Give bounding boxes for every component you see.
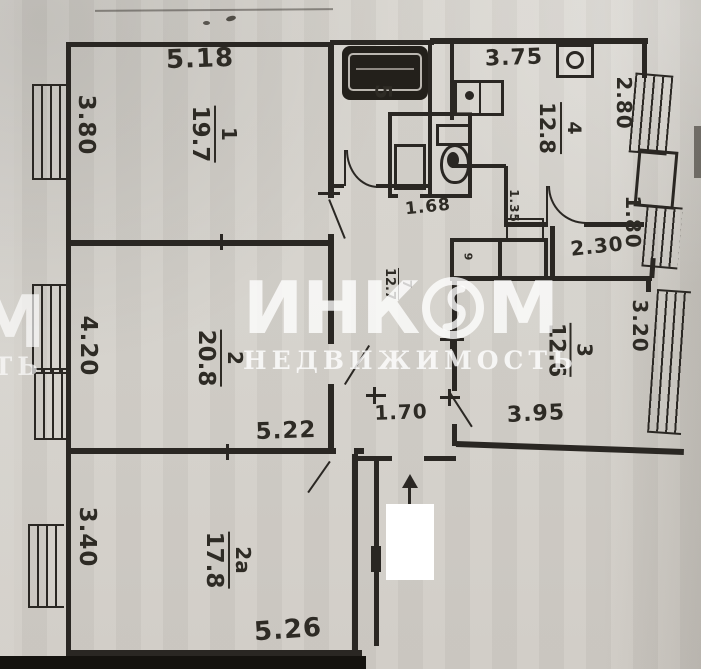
kitchen-sink-icon (454, 80, 504, 116)
kitchen-label: 4 12.8 (535, 102, 585, 154)
dim-hall-bottom: 1.70 (374, 399, 428, 425)
wall-segment (430, 38, 648, 44)
wall-segment (352, 456, 392, 461)
wall-segment (388, 112, 392, 198)
dim-room1-left: 3.80 (73, 95, 99, 156)
room2-area: 20.8 (193, 330, 219, 387)
dim-room2-bottom: 5.22 (255, 417, 317, 445)
dim-kitchen-top: 3.75 (484, 44, 543, 71)
wall-segment (388, 194, 398, 198)
bathroom-number: 5 (370, 84, 395, 100)
stove-icon (556, 44, 594, 78)
watermark-brand-prefix: ИНК (243, 272, 419, 344)
room1-label: 1 19.7 (187, 106, 241, 163)
window-room2a (28, 524, 64, 608)
dim-room3-bottom: 3.95 (506, 400, 566, 428)
wall-segment (371, 546, 381, 572)
dim-passage-top: 2.30 (569, 231, 625, 260)
room2a-number: 2а (231, 546, 255, 573)
dim-wc-bottom: 1.68 (404, 195, 452, 220)
watermark-brand: ИНК М (243, 272, 578, 344)
dim-room2a-bottom: 5.26 (253, 613, 323, 648)
watermark: ИНК М НЕДВИЖИМОСТЬ (243, 272, 578, 375)
ink-speckle (203, 21, 210, 25)
washbasin-icon (394, 144, 426, 190)
wall-segment (330, 184, 344, 188)
room2a-label: 2а 17.8 (201, 532, 255, 589)
watermark-logo-icon (421, 276, 485, 340)
dim-corridor-nook: 1.35 (507, 189, 521, 223)
dim-room2-left: 4.20 (75, 316, 101, 377)
window-kitchen-lower (641, 205, 682, 270)
window-room3 (647, 289, 691, 435)
scan-shadow-band (0, 656, 366, 669)
wall-segment (330, 40, 434, 45)
wall-segment (456, 441, 684, 455)
redaction-patch (386, 504, 434, 580)
wall-segment (424, 456, 456, 461)
dimension-tick (226, 444, 229, 460)
page-edge-mark (694, 126, 701, 178)
dimension-tick (318, 192, 340, 195)
wall-segment (428, 42, 432, 120)
closet-number: 9 (462, 253, 475, 262)
dimension-tick (366, 394, 386, 397)
dim-room1-top: 5.18 (165, 43, 234, 75)
door-leaf (328, 199, 346, 239)
door-swing-arc (346, 150, 378, 188)
dim-kitchen-right-upper: 2.80 (612, 76, 636, 129)
wall-segment (646, 276, 651, 292)
wall-segment (328, 42, 334, 198)
watermark-brand-suffix: М (487, 272, 558, 344)
room1-area: 19.7 (187, 106, 213, 163)
dim-kitchen-right-lower: 1.80 (621, 195, 645, 248)
door-swing-arc (548, 186, 586, 224)
watermark-subtitle: НЕДВИЖИМОСТЬ (243, 346, 578, 375)
watermark-edge-fragment-small: ОСТЬ (0, 352, 43, 381)
room1-number: 1 (217, 127, 241, 141)
kitchen-area: 12.8 (535, 102, 559, 154)
kitchen-number: 4 (563, 121, 585, 134)
wall-segment (428, 116, 432, 196)
entrance-arrow-icon (398, 460, 420, 504)
door-leaf (307, 461, 330, 493)
ink-speckle (226, 15, 237, 22)
dim-room3-right: 3.20 (628, 299, 652, 352)
toilet-bowl-icon (440, 144, 470, 184)
window-room1 (32, 84, 68, 180)
room2-label: 2 20.8 (193, 330, 247, 387)
floor-plan-scan: 5.18 3.80 1 19.7 4.20 2 20.8 5.22 3.40 2… (0, 0, 701, 669)
toilet-tank-icon (436, 124, 472, 146)
wall-segment (328, 384, 334, 454)
wall-segment (66, 240, 330, 246)
paper-crease (95, 8, 333, 12)
wall-segment (66, 650, 362, 656)
dimension-tick (220, 234, 223, 250)
room2a-area: 17.8 (201, 532, 227, 589)
wall-segment (352, 454, 358, 652)
dim-room2a-left: 3.40 (74, 507, 100, 568)
dimension-tick (448, 389, 451, 406)
wall-segment (66, 448, 336, 454)
